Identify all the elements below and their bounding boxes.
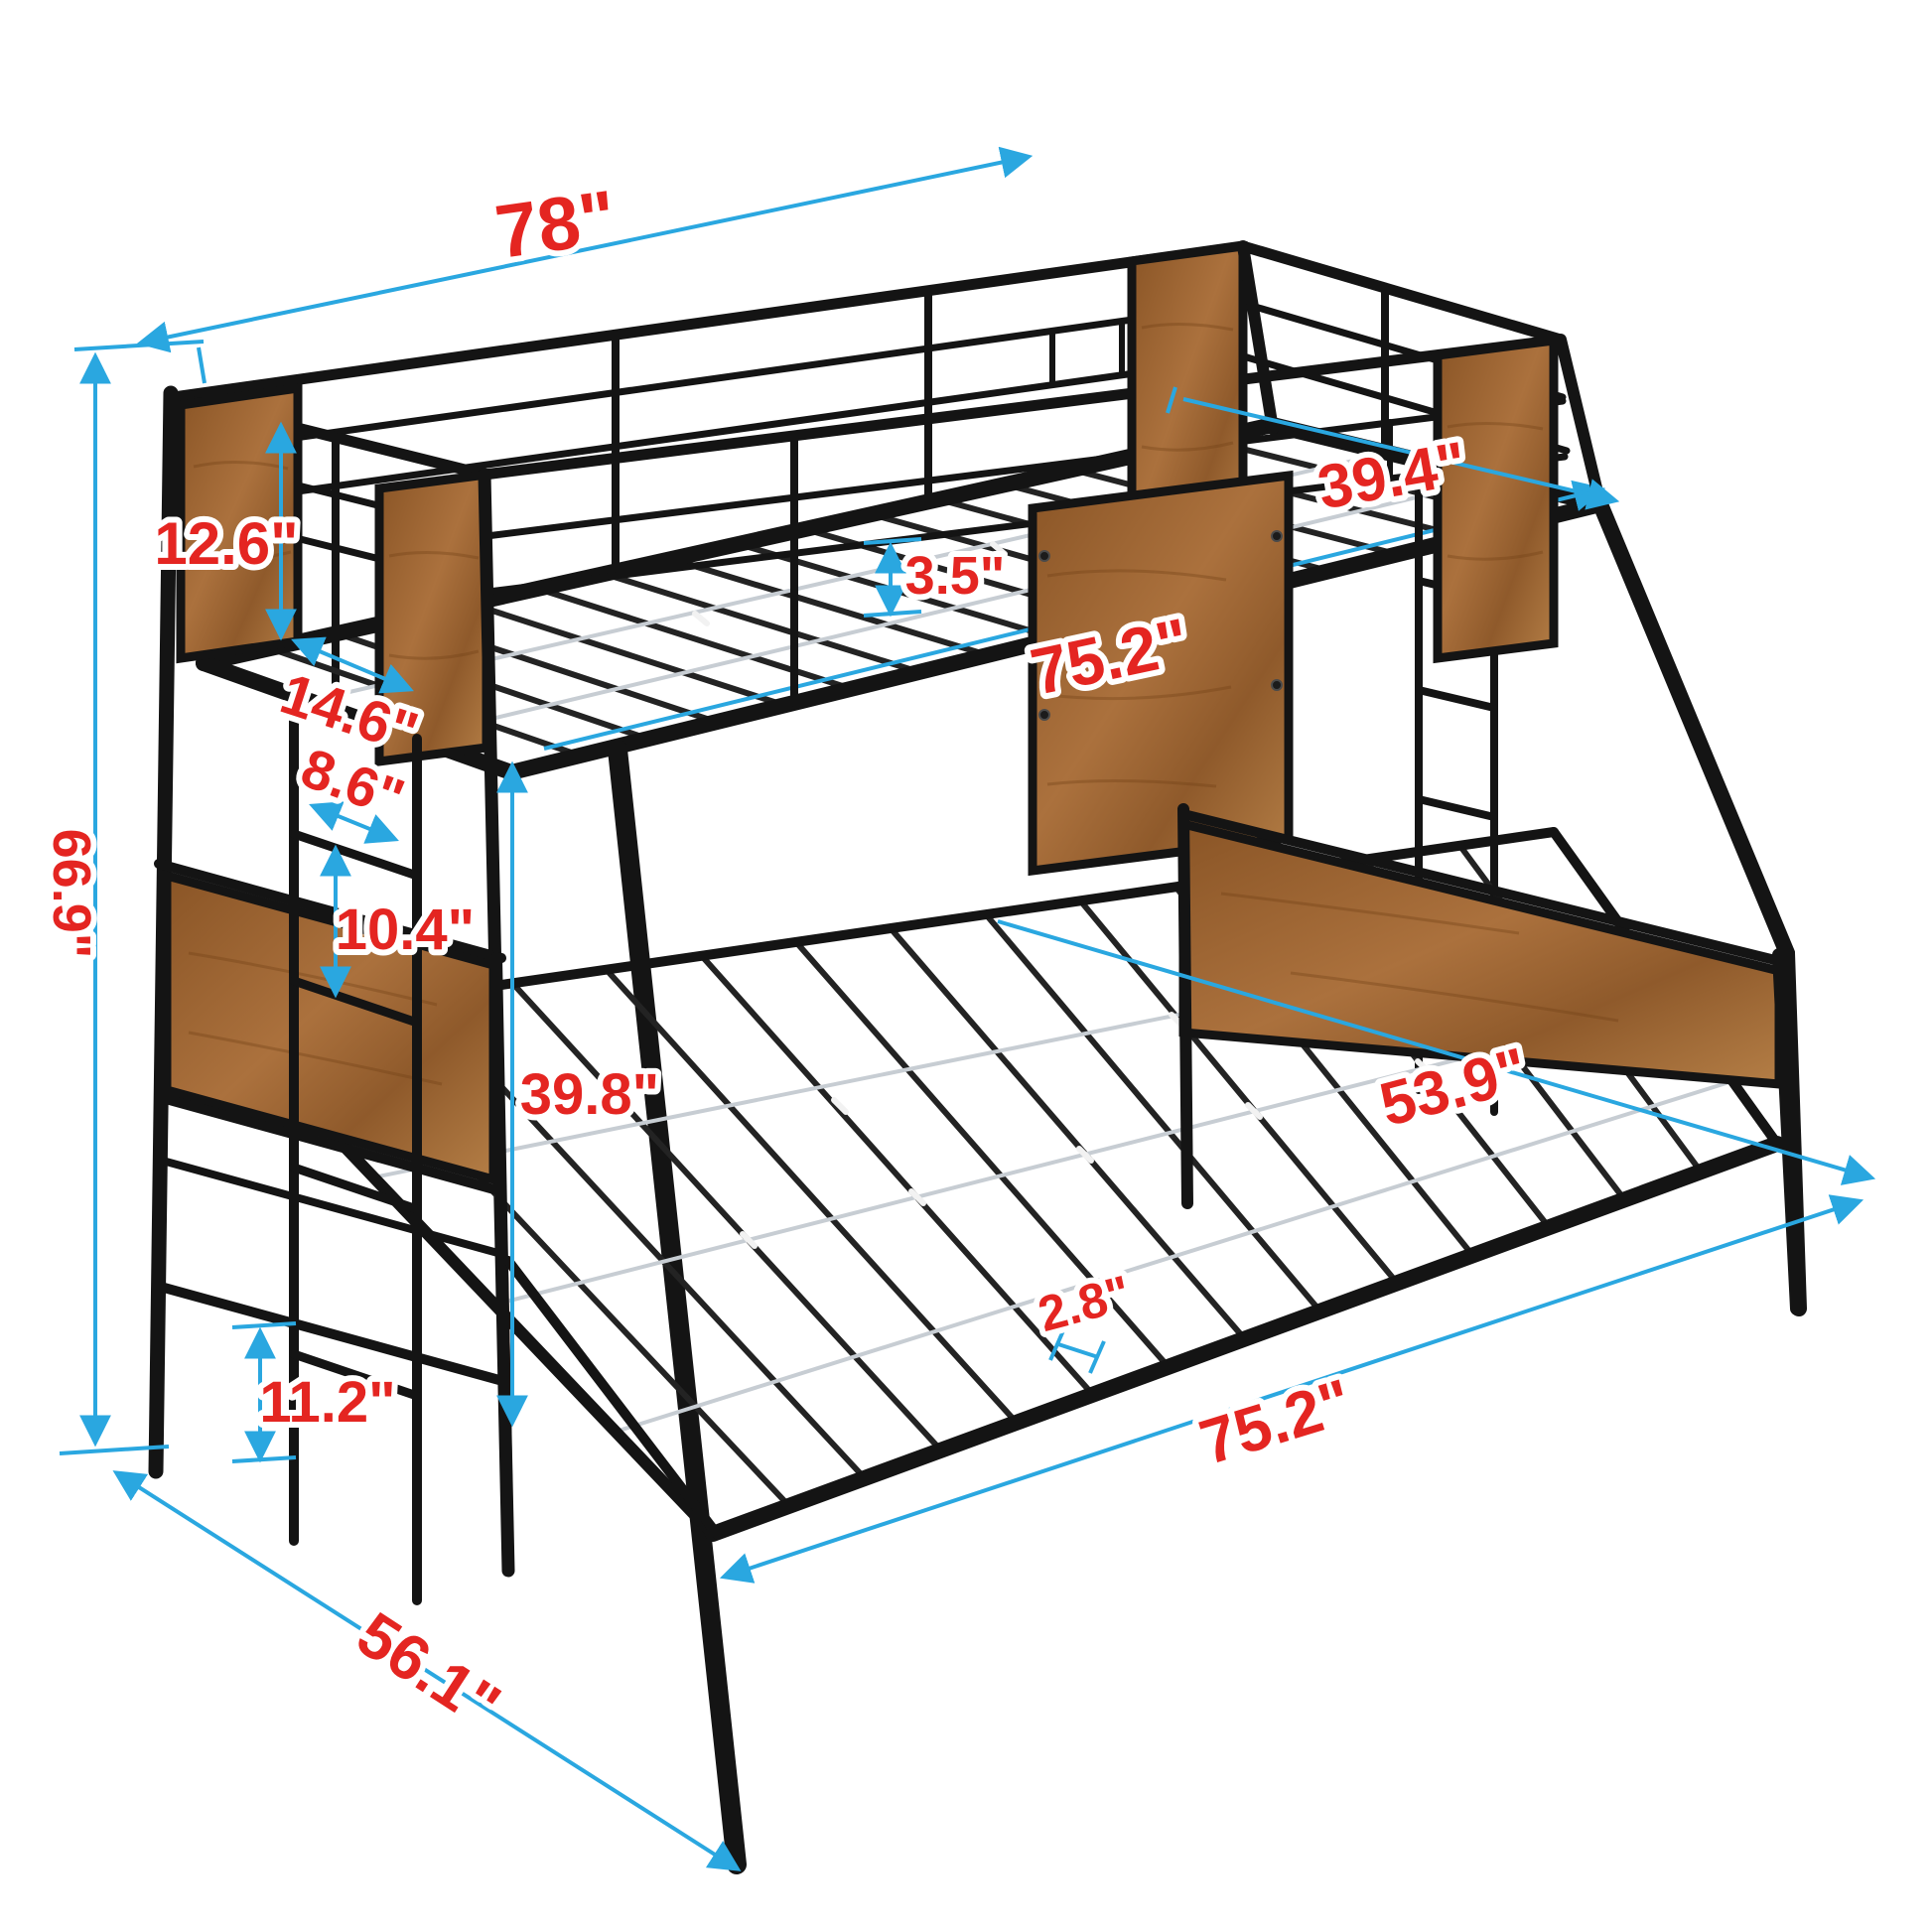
dimension-slat-spacing-label: 2.8" [1033, 1265, 1137, 1342]
dimension-slat-spacing-line [1058, 1344, 1098, 1357]
dimension-lower-inner-length-label: 75.2" [1191, 1365, 1359, 1478]
bunk-bed-dimension-diagram: 78" 66.9" 12.6" 14.6" 8.6" 10.4" 39.8" 3… [0, 0, 1932, 1932]
dimension-total-length-label: 78" [490, 175, 621, 275]
dimension-clearance-label: 11.2" [259, 1370, 395, 1435]
dimension-guardrail-gap-label: 3.5" [905, 546, 1006, 606]
dimension-bunk-height-label: 39.8" [520, 1062, 659, 1127]
diagram-canvas: 78" 66.9" 12.6" 14.6" 8.6" 10.4" 39.8" 3… [0, 0, 1932, 1932]
dimension-total-height-label: 66.9" [42, 829, 101, 959]
dimension-rung-spacing-label: 10.4" [336, 897, 475, 962]
dimension-panel-height-label: 12.6" [154, 510, 298, 577]
dimension-floor-depth-label: 56.1" [345, 1598, 512, 1742]
